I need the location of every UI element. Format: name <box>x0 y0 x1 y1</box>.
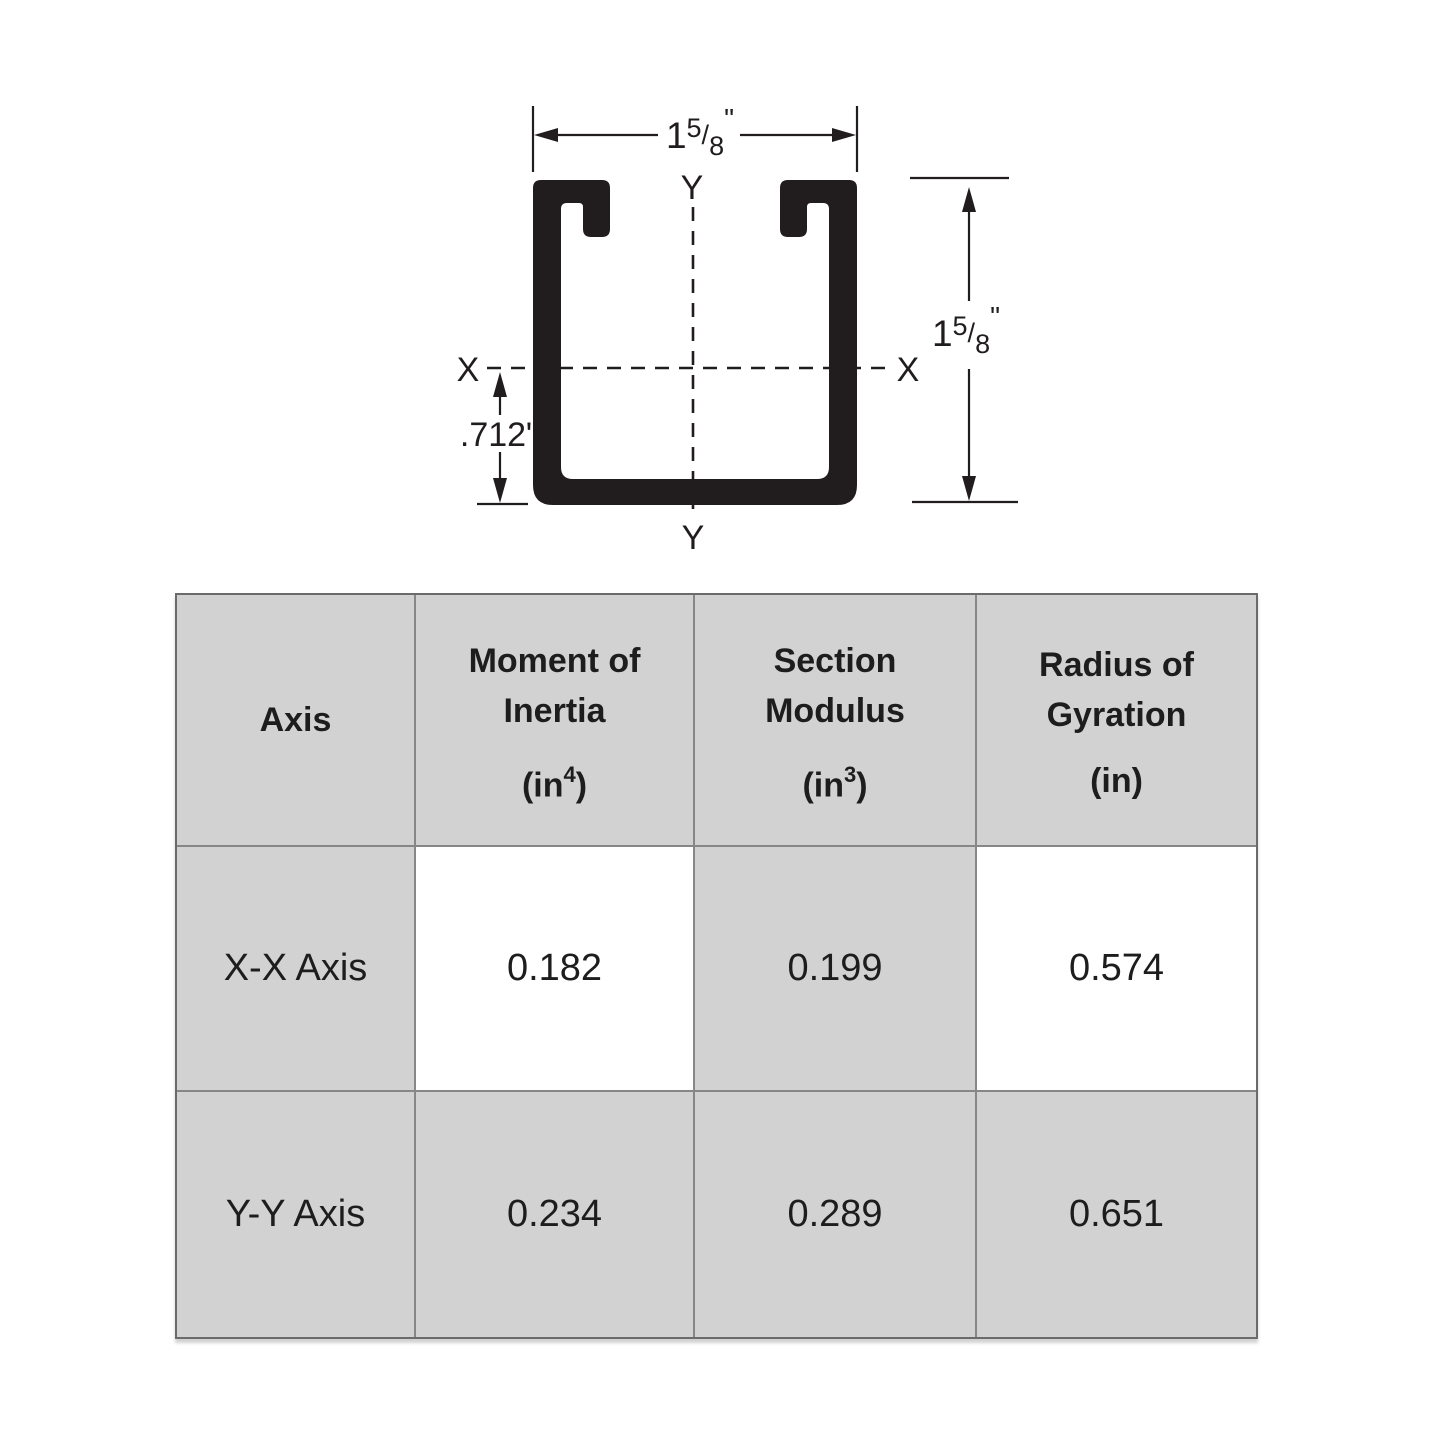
header-cell-radius-of-gyration: Radius of Gyration (in) <box>977 595 1256 847</box>
header-axis-label: Axis <box>260 695 332 745</box>
table-cell-xx-section-modulus: 0.199 <box>695 847 977 1092</box>
height-arrowhead-down <box>962 476 976 501</box>
radius-of-gyration-unit: (in) <box>1090 762 1143 800</box>
moment-of-inertia-unit: (in4) <box>522 758 587 804</box>
section-properties-table: Axis Moment of Inertia (in4) Section Mod… <box>175 593 1258 1339</box>
section-modulus-unit: (in3) <box>802 758 867 804</box>
y-axis-label-bottom: Y <box>682 519 705 557</box>
table-cell-xx-radius-of-gyration: 0.574 <box>977 847 1256 1092</box>
table-cell-yy-section-modulus: 0.289 <box>695 1092 977 1337</box>
y-axis-label-top: Y <box>681 169 704 207</box>
strut-channel-diagram: Y Y X X 15/8" 15/8" .712" <box>0 0 1445 585</box>
header-cell-axis: Axis <box>177 595 416 847</box>
x-axis-label-right: X <box>897 351 920 389</box>
width-arrowhead-left <box>534 128 558 142</box>
width-dimension-label: 15/8" <box>666 103 734 161</box>
height-arrowhead-up <box>962 187 976 212</box>
offset-dimension-label: .712" <box>460 416 538 454</box>
table-row-yy-axis-label: Y-Y Axis <box>177 1092 416 1337</box>
channel-cross-section <box>533 180 857 505</box>
table-cell-yy-radius-of-gyration: 0.651 <box>977 1092 1256 1337</box>
height-dimension-label: 15/8" <box>932 301 1000 359</box>
offset-arrowhead-down <box>493 478 507 503</box>
header-cell-section-modulus: Section Modulus (in3) <box>695 595 977 847</box>
table-cell-xx-moment-of-inertia: 0.182 <box>416 847 695 1092</box>
width-arrowhead-right <box>832 128 856 142</box>
page: Y Y X X 15/8" 15/8" .712" <box>0 0 1445 1445</box>
header-cell-moment-of-inertia: Moment of Inertia (in4) <box>416 595 695 847</box>
x-axis-label-left: X <box>457 351 480 389</box>
table-cell-yy-moment-of-inertia: 0.234 <box>416 1092 695 1337</box>
offset-arrowhead-up <box>493 372 507 397</box>
table-row-xx-axis-label: X-X Axis <box>177 847 416 1092</box>
